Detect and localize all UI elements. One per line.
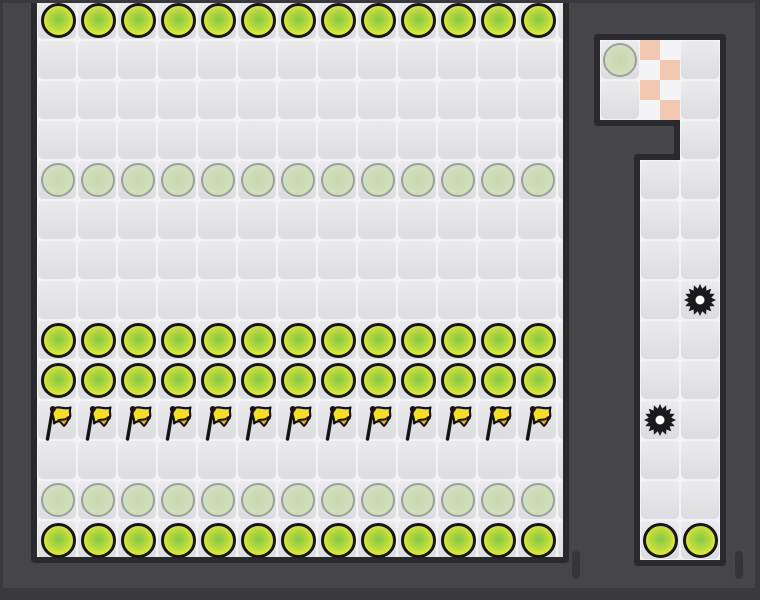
grid-tile bbox=[357, 80, 397, 120]
grid-tile bbox=[517, 280, 557, 320]
grid-tile bbox=[357, 440, 397, 480]
grid-tile bbox=[197, 80, 237, 120]
grid-tile bbox=[437, 440, 477, 480]
coin-faded bbox=[201, 483, 235, 517]
grid-tile bbox=[517, 120, 557, 160]
grid-tile bbox=[197, 280, 237, 320]
coin bbox=[441, 363, 476, 398]
saw-blade-icon bbox=[683, 283, 717, 317]
grid-tile bbox=[680, 240, 720, 280]
grid-tile bbox=[197, 120, 237, 160]
grid-tile bbox=[517, 80, 557, 120]
grid-tile bbox=[37, 40, 77, 80]
coin bbox=[441, 3, 476, 38]
grid-tile bbox=[157, 200, 197, 240]
grid-tile bbox=[557, 200, 563, 240]
grid-tile bbox=[157, 280, 197, 320]
grid-tile bbox=[317, 40, 357, 80]
coin bbox=[401, 363, 436, 398]
grid-tile bbox=[517, 440, 557, 480]
coin-faded bbox=[481, 483, 515, 517]
grid-tile bbox=[437, 40, 477, 80]
coin bbox=[281, 523, 316, 558]
grid-tile bbox=[437, 280, 477, 320]
grid-tile bbox=[157, 120, 197, 160]
coin bbox=[441, 323, 476, 358]
grid-tile bbox=[680, 120, 720, 160]
grid-tile bbox=[517, 240, 557, 280]
grid-tile bbox=[397, 280, 437, 320]
grid-tile bbox=[237, 200, 277, 240]
grid-tile bbox=[557, 480, 563, 520]
saw-hole bbox=[696, 296, 705, 305]
grid-tile bbox=[557, 80, 563, 120]
grid-tile bbox=[277, 240, 317, 280]
grid-tile bbox=[397, 200, 437, 240]
coin bbox=[361, 523, 396, 558]
grid-tile bbox=[557, 0, 563, 40]
flag-pole-ball bbox=[370, 406, 376, 412]
coin bbox=[441, 523, 476, 558]
coin bbox=[321, 363, 356, 398]
coin bbox=[361, 3, 396, 38]
grid-tile bbox=[77, 200, 117, 240]
coin-faded bbox=[281, 483, 315, 517]
grid-tile bbox=[117, 40, 157, 80]
coin bbox=[161, 363, 196, 398]
grid-tile bbox=[77, 80, 117, 120]
grid-tile bbox=[237, 280, 277, 320]
grid-tile bbox=[277, 440, 317, 480]
grid-tile bbox=[640, 280, 680, 320]
saw-blade-icon bbox=[643, 403, 677, 437]
grid-tile bbox=[197, 200, 237, 240]
coin bbox=[121, 323, 156, 358]
grid-tile bbox=[640, 480, 680, 520]
grid-tile bbox=[680, 480, 720, 520]
coin bbox=[481, 523, 516, 558]
grid-tile bbox=[397, 440, 437, 480]
flag-pole bbox=[48, 410, 53, 439]
coin bbox=[161, 523, 196, 558]
coin-faded bbox=[441, 483, 475, 517]
coin bbox=[241, 3, 276, 38]
coin bbox=[281, 363, 316, 398]
grid-tile bbox=[277, 80, 317, 120]
grid-tile bbox=[437, 200, 477, 240]
coin bbox=[683, 523, 718, 558]
flag-pole bbox=[168, 410, 173, 439]
grid-tile bbox=[357, 200, 397, 240]
grid-tile bbox=[237, 40, 277, 80]
coin bbox=[521, 363, 556, 398]
flag-pole bbox=[128, 410, 133, 439]
coin-faded bbox=[361, 163, 395, 197]
coin bbox=[121, 363, 156, 398]
coin bbox=[41, 323, 76, 358]
grid-tile bbox=[477, 120, 517, 160]
flag-pole-ball bbox=[330, 406, 336, 412]
coin bbox=[241, 523, 276, 558]
grid-tile bbox=[77, 240, 117, 280]
coin bbox=[401, 323, 436, 358]
background-slit bbox=[735, 551, 743, 579]
grid-tile bbox=[37, 80, 77, 120]
grid-tile bbox=[277, 120, 317, 160]
grid-tile bbox=[397, 40, 437, 80]
coin bbox=[521, 523, 556, 558]
coin bbox=[643, 523, 678, 558]
grid-tile bbox=[157, 40, 197, 80]
coin-faded bbox=[121, 483, 155, 517]
grid-tile bbox=[357, 280, 397, 320]
coin bbox=[81, 323, 116, 358]
checkpoint-flag-icon bbox=[198, 402, 238, 442]
flag-pole-ball bbox=[210, 406, 216, 412]
coin bbox=[241, 323, 276, 358]
checkpoint-flag-icon bbox=[518, 402, 558, 442]
grid-tile bbox=[680, 40, 720, 80]
coin-faded bbox=[281, 163, 315, 197]
coin bbox=[361, 363, 396, 398]
grid-tile bbox=[77, 120, 117, 160]
grid-tile bbox=[237, 440, 277, 480]
coin bbox=[161, 323, 196, 358]
coin-faded bbox=[241, 483, 275, 517]
coin bbox=[161, 3, 196, 38]
grid-tile bbox=[117, 120, 157, 160]
coin-faded bbox=[321, 163, 355, 197]
coin-faded bbox=[41, 483, 75, 517]
grid-tile bbox=[317, 80, 357, 120]
coin-faded bbox=[81, 483, 115, 517]
game-stage[interactable] bbox=[0, 0, 760, 600]
coin bbox=[321, 523, 356, 558]
grid-tile bbox=[117, 440, 157, 480]
grid-tile bbox=[157, 440, 197, 480]
grid-tile bbox=[680, 200, 720, 240]
coin bbox=[401, 3, 436, 38]
coin bbox=[121, 523, 156, 558]
grid-tile bbox=[237, 240, 277, 280]
saw-hole bbox=[656, 416, 665, 425]
grid-tile bbox=[277, 280, 317, 320]
grid-tile bbox=[37, 200, 77, 240]
grid-tile bbox=[117, 280, 157, 320]
flag-pole-ball bbox=[530, 406, 536, 412]
coin bbox=[521, 323, 556, 358]
coin-faded bbox=[201, 163, 235, 197]
coin bbox=[321, 3, 356, 38]
flag-pole bbox=[528, 410, 533, 439]
grid-tile bbox=[437, 240, 477, 280]
coin bbox=[481, 3, 516, 38]
grid-tile bbox=[477, 440, 517, 480]
grid-tile bbox=[37, 120, 77, 160]
flag-pole-ball bbox=[290, 406, 296, 412]
coin-faded bbox=[603, 43, 637, 77]
grid-tile bbox=[157, 80, 197, 120]
coin-faded bbox=[481, 163, 515, 197]
coin-faded bbox=[81, 163, 115, 197]
grid-tile bbox=[680, 160, 720, 200]
grid-tile bbox=[317, 440, 357, 480]
grid-tile bbox=[557, 320, 563, 360]
flag-pole bbox=[488, 410, 493, 439]
grid-tile bbox=[157, 240, 197, 280]
coin bbox=[481, 323, 516, 358]
grid-tile bbox=[317, 240, 357, 280]
grid-tile bbox=[477, 40, 517, 80]
grid-tile bbox=[277, 200, 317, 240]
coin-faded bbox=[161, 483, 195, 517]
coin bbox=[401, 523, 436, 558]
flag-pole-ball bbox=[410, 406, 416, 412]
coin bbox=[281, 323, 316, 358]
coin bbox=[361, 323, 396, 358]
flag-pole-ball bbox=[450, 406, 456, 412]
coin bbox=[81, 523, 116, 558]
grid-tile bbox=[37, 440, 77, 480]
grid-tile bbox=[237, 120, 277, 160]
checkpoint-flag-icon bbox=[358, 402, 398, 442]
flag-pole bbox=[88, 410, 93, 439]
grid-tile bbox=[557, 280, 563, 320]
grid-tile bbox=[117, 80, 157, 120]
background-slit bbox=[572, 551, 580, 579]
coin bbox=[41, 523, 76, 558]
grid-tile bbox=[640, 240, 680, 280]
flag-pole bbox=[288, 410, 293, 439]
flag-pole bbox=[328, 410, 333, 439]
coin-faded bbox=[121, 163, 155, 197]
grid-tile bbox=[437, 80, 477, 120]
grid-tile bbox=[37, 240, 77, 280]
floor-main bbox=[37, 0, 563, 557]
coin bbox=[521, 3, 556, 38]
checkpoint-flag-icon bbox=[438, 402, 478, 442]
grid-tile bbox=[600, 80, 640, 120]
grid-tile bbox=[680, 440, 720, 480]
coin-faded bbox=[521, 163, 555, 197]
checkpoint-flag-icon bbox=[318, 402, 358, 442]
grid-tile bbox=[437, 120, 477, 160]
coin bbox=[81, 3, 116, 38]
grid-tile bbox=[117, 200, 157, 240]
grid-tile bbox=[557, 120, 563, 160]
coin bbox=[241, 363, 276, 398]
coin-faded bbox=[41, 163, 75, 197]
grid-tile bbox=[397, 120, 437, 160]
grid-tile bbox=[197, 440, 237, 480]
grid-tile bbox=[557, 160, 563, 200]
grid-tile bbox=[557, 40, 563, 80]
grid-tile bbox=[477, 280, 517, 320]
grid-tile bbox=[640, 160, 680, 200]
grid-tile bbox=[680, 320, 720, 360]
grid-tile bbox=[477, 200, 517, 240]
grid-tile bbox=[397, 240, 437, 280]
coin bbox=[121, 3, 156, 38]
grid-tile bbox=[640, 360, 680, 400]
floor-corridor bbox=[640, 160, 720, 560]
grid-tile bbox=[517, 200, 557, 240]
coin-faded bbox=[361, 483, 395, 517]
grid-tile bbox=[317, 120, 357, 160]
grid-tile bbox=[680, 80, 720, 120]
coin bbox=[81, 363, 116, 398]
grid-tile bbox=[77, 40, 117, 80]
grid-tile bbox=[357, 240, 397, 280]
grid-tile bbox=[37, 280, 77, 320]
grid-tile bbox=[317, 280, 357, 320]
coin bbox=[201, 3, 236, 38]
checkpoint-flag-icon bbox=[278, 402, 318, 442]
grid-tile bbox=[117, 240, 157, 280]
flag-pole-ball bbox=[170, 406, 176, 412]
coin-faded bbox=[441, 163, 475, 197]
flag-pole-ball bbox=[490, 406, 496, 412]
checkpoint-flag-icon bbox=[118, 402, 158, 442]
grid-tile bbox=[277, 40, 317, 80]
coin bbox=[201, 323, 236, 358]
checkpoint-flag-icon bbox=[78, 402, 118, 442]
checker-finish-zone bbox=[640, 40, 680, 120]
checkpoint-flag-icon bbox=[38, 402, 78, 442]
checkpoint-flag-icon bbox=[238, 402, 278, 442]
flag-pole bbox=[448, 410, 453, 439]
grid-tile bbox=[77, 280, 117, 320]
grid-tile bbox=[477, 240, 517, 280]
grid-tile bbox=[317, 200, 357, 240]
coin-faded bbox=[401, 163, 435, 197]
grid-tile bbox=[237, 80, 277, 120]
grid-tile bbox=[557, 520, 563, 557]
grid-tile bbox=[680, 400, 720, 440]
flag-pole bbox=[208, 410, 213, 439]
grid-tile bbox=[640, 320, 680, 360]
coin-faded bbox=[161, 163, 195, 197]
coin-faded bbox=[241, 163, 275, 197]
flag-pole bbox=[248, 410, 253, 439]
floor-neck bbox=[680, 120, 720, 160]
grid-tile bbox=[640, 200, 680, 240]
coin-faded bbox=[521, 483, 555, 517]
grid-tile bbox=[557, 360, 563, 400]
grid-tile bbox=[640, 440, 680, 480]
grid-tile bbox=[197, 40, 237, 80]
coin bbox=[41, 3, 76, 38]
coin-faded bbox=[321, 483, 355, 517]
coin-faded bbox=[401, 483, 435, 517]
flag-pole-ball bbox=[130, 406, 136, 412]
checkpoint-flag-icon bbox=[158, 402, 198, 442]
flag-pole bbox=[408, 410, 413, 439]
coin bbox=[321, 323, 356, 358]
grid-tile bbox=[517, 40, 557, 80]
grid-tile bbox=[357, 40, 397, 80]
grid-tile bbox=[197, 240, 237, 280]
flag-pole-ball bbox=[90, 406, 96, 412]
checkpoint-flag-icon bbox=[478, 402, 518, 442]
coin bbox=[201, 523, 236, 558]
flag-pole bbox=[368, 410, 373, 439]
checkpoint-flag-icon bbox=[398, 402, 438, 442]
grid-tile bbox=[357, 120, 397, 160]
grid-tile bbox=[397, 80, 437, 120]
flag-pole-ball bbox=[50, 406, 56, 412]
coin bbox=[481, 363, 516, 398]
grid-tile bbox=[557, 240, 563, 280]
coin bbox=[201, 363, 236, 398]
coin bbox=[41, 363, 76, 398]
grid-tile bbox=[77, 440, 117, 480]
grid-tile bbox=[557, 440, 563, 480]
coin bbox=[281, 3, 316, 38]
grid-tile bbox=[477, 80, 517, 120]
grid-tile bbox=[680, 360, 720, 400]
flag-pole-ball bbox=[250, 406, 256, 412]
